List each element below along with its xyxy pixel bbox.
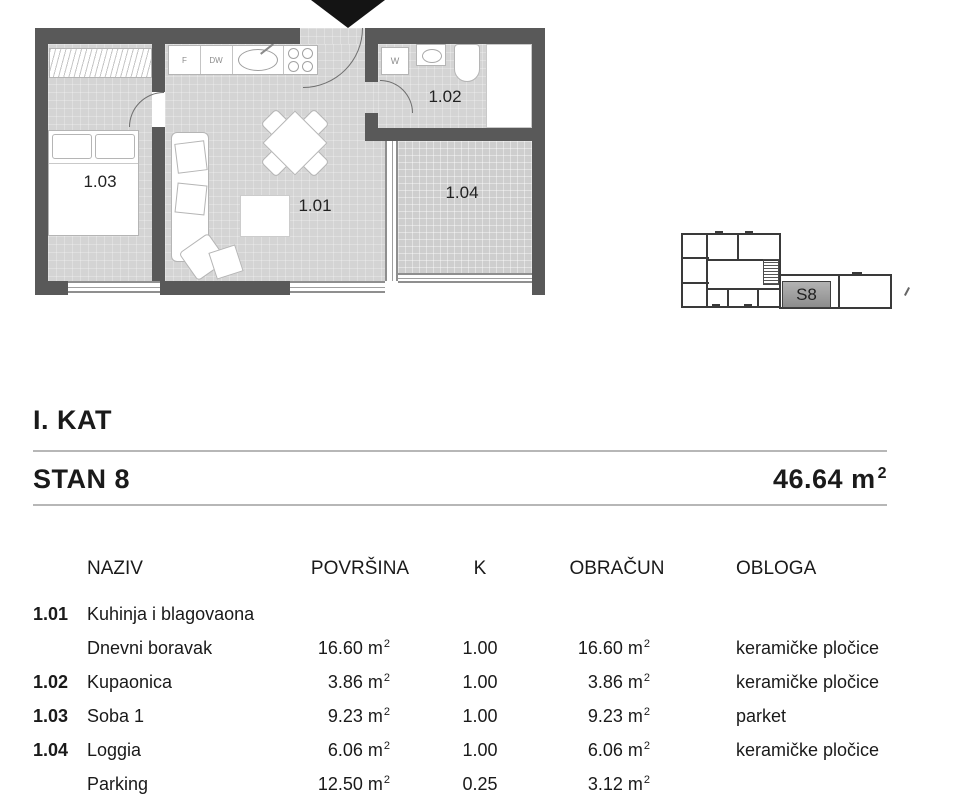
room-1-04-floor [398,141,532,273]
loggia-railing [398,273,532,283]
floor-title: I. KAT [33,403,887,437]
divider-line [33,504,887,506]
apartment-sheet-page: F DW [0,0,960,799]
key-plan-line [681,282,709,284]
header-obloga: OBLOGA [736,552,896,586]
pillow [95,134,135,159]
cell-obloga: keramičke pločice [736,631,896,665]
header-naziv: NAZIV [87,552,287,586]
wall [35,281,68,295]
wall [152,127,165,281]
table-row: 1.04 Loggia 6.06 m2 1.00 6.06 m2 keramič… [33,733,887,767]
key-plan-window-tick [745,231,753,235]
cell-obloga: keramičke pločice [736,665,896,699]
burner [288,61,299,72]
loggia-glass-door [385,141,398,281]
wall [35,28,300,44]
table-row: Parking 12.50 m2 0.25 3.12 m2 [33,767,887,799]
sink-basin [238,49,278,71]
entrance-arrow-icon [311,0,385,28]
table-header-row: NAZIV POVRŠINA K OBRAČUN OBLOGA [33,552,887,586]
unit-title-row: STAN 8 46.64 m2 [33,462,887,496]
window [68,281,160,293]
room-label-1-03: 1.03 [83,172,116,192]
kitchen-counter: F DW [168,45,318,75]
cell-code: 1.03 [33,699,81,733]
cell-povrsina: 9.23 m2 [230,699,390,736]
cell-povrsina: 6.06 m2 [230,733,390,770]
header-k: K [440,552,520,586]
shower [486,44,532,128]
dishwasher-label: DW [209,56,222,65]
key-plan-line [681,257,709,259]
key-plan-block [681,233,709,308]
room-label-1-04: 1.04 [445,183,478,203]
burner [288,48,299,59]
table-row: 1.02 Kupaonica 3.86 m2 1.00 3.86 m2 kera… [33,665,887,699]
cell-code: 1.04 [33,733,81,767]
sofa-cushion [174,140,207,173]
dishwasher: DW [200,46,233,74]
table-row: 1.03 Soba 1 9.23 m2 1.00 9.23 m2 parket [33,699,887,733]
washing-machine: W [381,47,409,75]
wall [365,44,378,82]
cell-obloga: keramičke pločice [736,733,896,767]
fridge: F [169,46,201,74]
kitchen-sink [232,46,284,74]
bed-sheet-line [49,163,138,164]
key-plan-line [737,233,739,261]
cell-obracun: 3.86 m2 [490,665,650,702]
key-plan-window-tick [715,231,723,235]
wall [152,44,165,92]
wall [532,28,545,295]
washer-label: W [391,56,400,66]
fridge-label: F [182,56,187,65]
wall [365,128,545,141]
cell-obracun: 9.23 m2 [490,699,650,736]
key-plan-window-tick [852,272,862,276]
floor-plan: F DW [35,28,545,295]
total-area-sup: 2 [878,465,887,482]
wall [365,28,545,44]
total-area-value: 46.64 [773,464,843,494]
faucet [260,43,274,54]
cell-obloga: parket [736,699,896,733]
room-label-1-01: 1.01 [298,196,331,216]
cell-obracun: 3.12 m2 [490,767,650,799]
side-table [240,195,290,237]
toilet [454,44,480,82]
key-plan-window-tick [712,304,720,308]
cell-povrsina: 3.86 m2 [230,665,390,702]
cell-obracun: 16.60 m2 [490,631,650,668]
table-body: 1.01 Kuhinja i blagovaona Dnevni boravak… [33,597,887,799]
cell-code: 1.01 [33,597,81,631]
header-obracun: OBRAČUN [537,552,697,586]
cell-code: 1.02 [33,665,81,699]
key-plan-stairs [763,259,779,285]
key-plan-window-tick [744,304,752,308]
wall [160,281,290,295]
stray-mark [904,287,910,296]
unit-badge-s8: S8 [782,281,831,308]
basin [422,49,442,63]
header-povrsina: POVRŠINA [280,552,440,586]
cell-naziv: Kuhinja i blagovaona [87,597,287,631]
wardrobe [49,48,152,78]
room-label-1-02: 1.02 [428,87,461,107]
cell-povrsina: 16.60 m2 [230,631,390,668]
key-plan-line [838,274,840,309]
total-area-unit: m [851,464,876,494]
key-plan-line [727,288,729,308]
wall [35,28,48,295]
cell-obracun: 6.06 m2 [490,733,650,770]
table-row: 1.01 Kuhinja i blagovaona [33,597,887,631]
bathroom-sink [416,44,446,66]
area-table: NAZIV POVRŠINA K OBRAČUN OBLOGA 1.01 Kuh… [33,552,887,799]
pillow [52,134,92,159]
key-plan-line [757,288,759,308]
window [290,281,385,293]
sofa-cushion [175,183,208,216]
divider-line [33,450,887,452]
key-plan-line [706,288,781,290]
unit-title: STAN 8 [33,462,130,496]
cell-povrsina: 12.50 m2 [230,767,390,799]
table-row: Dnevni boravak 16.60 m2 1.00 16.60 m2 ke… [33,631,887,665]
total-area: 46.64 m2 [773,462,887,501]
